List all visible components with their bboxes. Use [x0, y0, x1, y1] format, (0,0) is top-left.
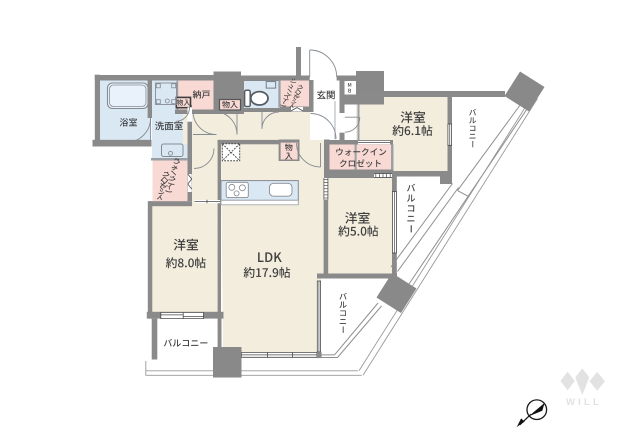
svg-text:WILL: WILL: [566, 397, 602, 408]
